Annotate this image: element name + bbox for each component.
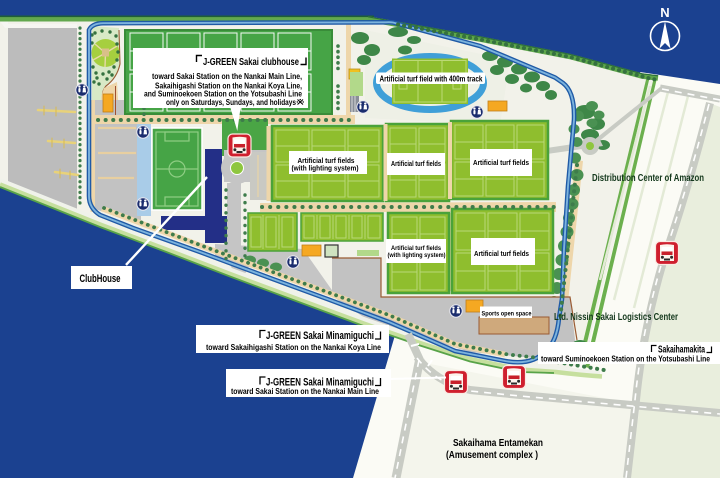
svg-text:(with lighting system): (with lighting system) bbox=[388, 252, 446, 259]
svg-text:N: N bbox=[660, 5, 669, 20]
svg-text:Artificial turf fields: Artificial turf fields bbox=[391, 245, 441, 252]
svg-text:Sports open space: Sports open space bbox=[482, 311, 532, 318]
svg-text:toward Sakai Station on the Na: toward Sakai Station on the Nankai Main … bbox=[231, 387, 379, 396]
svg-text:toward Sakaihigashi Station on: toward Sakaihigashi Station on the Nanka… bbox=[206, 343, 381, 352]
svg-text:Artificial turf fields: Artificial turf fields bbox=[473, 158, 529, 167]
svg-text:toward Sakai Station on the Na: toward Sakai Station on the Nankai Main … bbox=[152, 72, 302, 81]
svg-text:J-GREEN Sakai Minamiguchi: J-GREEN Sakai Minamiguchi bbox=[266, 330, 374, 342]
svg-text:toward Suminoekoen Station on: toward Suminoekoen Station on the Yotsub… bbox=[541, 355, 710, 364]
svg-text:only on Saturdays, Sundays, an: only on Saturdays, Sundays, and holidays bbox=[166, 98, 296, 107]
svg-text:(Amusement complex ): (Amusement complex ) bbox=[446, 450, 538, 461]
svg-text:Artificial turf fields: Artificial turf fields bbox=[391, 161, 441, 168]
svg-text:(with lighting system): (with lighting system) bbox=[292, 164, 359, 173]
svg-text:Distribution Center of Amazon: Distribution Center of Amazon bbox=[592, 172, 704, 184]
svg-text:Sakaihama Entamekan: Sakaihama Entamekan bbox=[453, 438, 543, 449]
svg-text:Artificial turf fields: Artificial turf fields bbox=[474, 249, 529, 258]
svg-text:Ltd. Nissin Sakai Logistics Ce: Ltd. Nissin Sakai Logistics Center bbox=[554, 311, 678, 323]
svg-text:ClubHouse: ClubHouse bbox=[80, 273, 121, 285]
svg-text:Artificial turf field with 400: Artificial turf field with 400m track bbox=[380, 75, 484, 84]
svg-text:J-GREEN Sakai clubhouse: J-GREEN Sakai clubhouse bbox=[203, 56, 299, 68]
